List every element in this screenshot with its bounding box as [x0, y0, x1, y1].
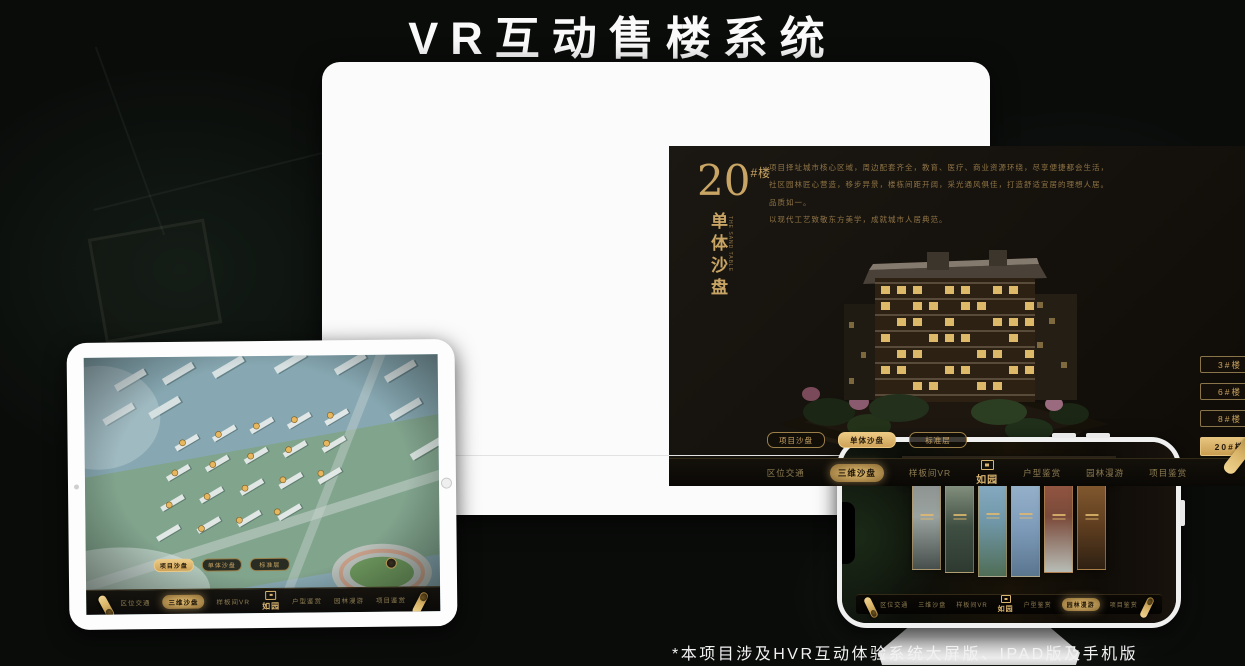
background-sign-frame: [88, 219, 223, 344]
tablet-nav-item-project-gallery[interactable]: 项目鉴赏: [376, 594, 406, 604]
logo-emblem-icon: [1001, 595, 1011, 603]
poster-canvas: VR互动售楼系统 20#楼 单体沙盘 THE SAND TABLE 项目择址城市…: [0, 0, 1245, 666]
description-line: 社区园林匠心营造，移步异景，楼栋间距开阔，采光通风俱佳，打造舒适宜居的理想人居。: [769, 179, 1179, 190]
compass-icon[interactable]: [386, 558, 397, 569]
panel-caption-mark: [1019, 513, 1032, 515]
nav-item-project-gallery[interactable]: 项目鉴赏: [1149, 467, 1187, 479]
description-line: 品质如一。: [769, 197, 1179, 208]
tablet-nav-item-showroom-vr[interactable]: 样板间VR: [216, 596, 250, 606]
brand-logo-text: 如园: [976, 471, 998, 486]
phone-nav-item-showroom-vr[interactable]: 样板间VR: [956, 600, 987, 609]
phone-nav-item-garden-tour[interactable]: 园林漫游: [1062, 598, 1100, 611]
panel-caption-mark: [953, 514, 966, 516]
tablet-view-tab-group: 项目沙盘 单体沙盘 标准层: [154, 558, 290, 572]
logo-emblem-icon: [265, 590, 276, 599]
camera-icon: [74, 484, 79, 489]
tablet-tab-project-sandtable[interactable]: 项目沙盘: [154, 559, 194, 572]
phone-brand-logo: 如园: [998, 595, 1014, 614]
description-line: 项目择址城市核心区域，周边配套齐全，教育、医疗、商业资源环绕，尽享便捷都会生活，: [769, 162, 1179, 173]
phone-notch: [842, 502, 855, 564]
page-title: VR互动售楼系统: [0, 2, 1245, 67]
tab-single-sandtable[interactable]: 单体沙盘: [838, 432, 896, 448]
gallery-panel-courtyard[interactable]: [912, 473, 941, 570]
tablet-tab-single-sandtable[interactable]: 单体沙盘: [202, 558, 242, 571]
phone-nav-item-unit-plans[interactable]: 户型鉴赏: [1024, 600, 1052, 609]
tablet-tab-standard-floor[interactable]: 标准层: [250, 558, 290, 571]
aerial-view-render: [84, 354, 441, 615]
volume-button[interactable]: [1086, 433, 1110, 438]
brand-logo-text: 如园: [262, 600, 280, 611]
tab-standard-floor[interactable]: 标准层: [909, 432, 967, 448]
tab-project-sandtable[interactable]: 项目沙盘: [767, 432, 825, 448]
tablet-nav-item-3d-sandtable[interactable]: 三维沙盘: [162, 595, 204, 609]
panel-caption-mark: [1085, 514, 1098, 516]
panel-caption-mark: [1052, 514, 1065, 516]
floor-button-3[interactable]: 3#楼: [1200, 356, 1245, 373]
building-number: 20: [697, 156, 750, 205]
phone-nav-item-project-gallery[interactable]: 项目鉴赏: [1110, 600, 1138, 609]
brand-logo-text: 如园: [998, 604, 1014, 614]
gallery-panel-study[interactable]: [1077, 473, 1106, 570]
tablet-nav-item-location[interactable]: 区位交通: [120, 597, 150, 607]
panel-caption-mark: [920, 514, 933, 516]
nav-item-garden-tour[interactable]: 园林漫游: [1086, 467, 1124, 479]
tablet-brand-logo: 如园: [262, 590, 280, 611]
tablet-screen: 项目沙盘 单体沙盘 标准层 区位交通 三维沙盘 样板间VR 如园 户型鉴赏 园林…: [84, 354, 441, 615]
building-heading: 20#楼: [697, 160, 771, 202]
view-tab-group: 项目沙盘 单体沙盘 标准层: [767, 432, 967, 448]
brand-logo: 如园: [976, 460, 998, 486]
desktop-screen: 20#楼 单体沙盘 THE SAND TABLE 项目择址城市核心区域，周边配套…: [669, 146, 1245, 486]
heading-vertical-en: THE SAND TABLE: [727, 216, 733, 272]
home-button[interactable]: [441, 477, 452, 488]
phone-nav-item-location[interactable]: 区位交通: [880, 600, 908, 609]
phone-nav-bar: 区位交通 三维沙盘 样板间VR 如园 户型鉴赏 园林漫游 项目鉴赏: [856, 594, 1162, 614]
power-button[interactable]: [1180, 500, 1185, 526]
floor-button-8[interactable]: 8#楼: [1200, 410, 1245, 427]
nav-item-showroom-vr[interactable]: 样板间VR: [909, 467, 951, 479]
floor-button-6[interactable]: 6#楼: [1200, 383, 1245, 400]
phone-nav-item-3d-sandtable[interactable]: 三维沙盘: [918, 600, 946, 609]
logo-emblem-icon: [981, 460, 994, 470]
nav-item-location[interactable]: 区位交通: [767, 467, 805, 479]
nav-item-3d-sandtable[interactable]: 三维沙盘: [830, 464, 884, 482]
panel-caption-mark: [986, 513, 999, 515]
tablet-nav-bar: 区位交通 三维沙盘 样板间VR 如园 户型鉴赏 园林漫游 项目鉴赏: [86, 586, 440, 615]
volume-button[interactable]: [1052, 433, 1076, 438]
tablet-device: 项目沙盘 单体沙盘 标准层 区位交通 三维沙盘 样板间VR 如园 户型鉴赏 园林…: [67, 339, 458, 630]
nav-item-unit-plans[interactable]: 户型鉴赏: [1023, 467, 1061, 479]
desktop-nav-bar: 区位交通 三维沙盘 样板间VR 如园 户型鉴赏 园林漫游 项目鉴赏: [669, 458, 1245, 486]
footnote: *本项目涉及HVR互动体验系统大屏版、IPAD版及手机版: [672, 640, 1138, 664]
tablet-nav-item-unit-plans[interactable]: 户型鉴赏: [292, 595, 322, 605]
tablet-nav-item-garden-tour[interactable]: 园林漫游: [334, 595, 364, 605]
